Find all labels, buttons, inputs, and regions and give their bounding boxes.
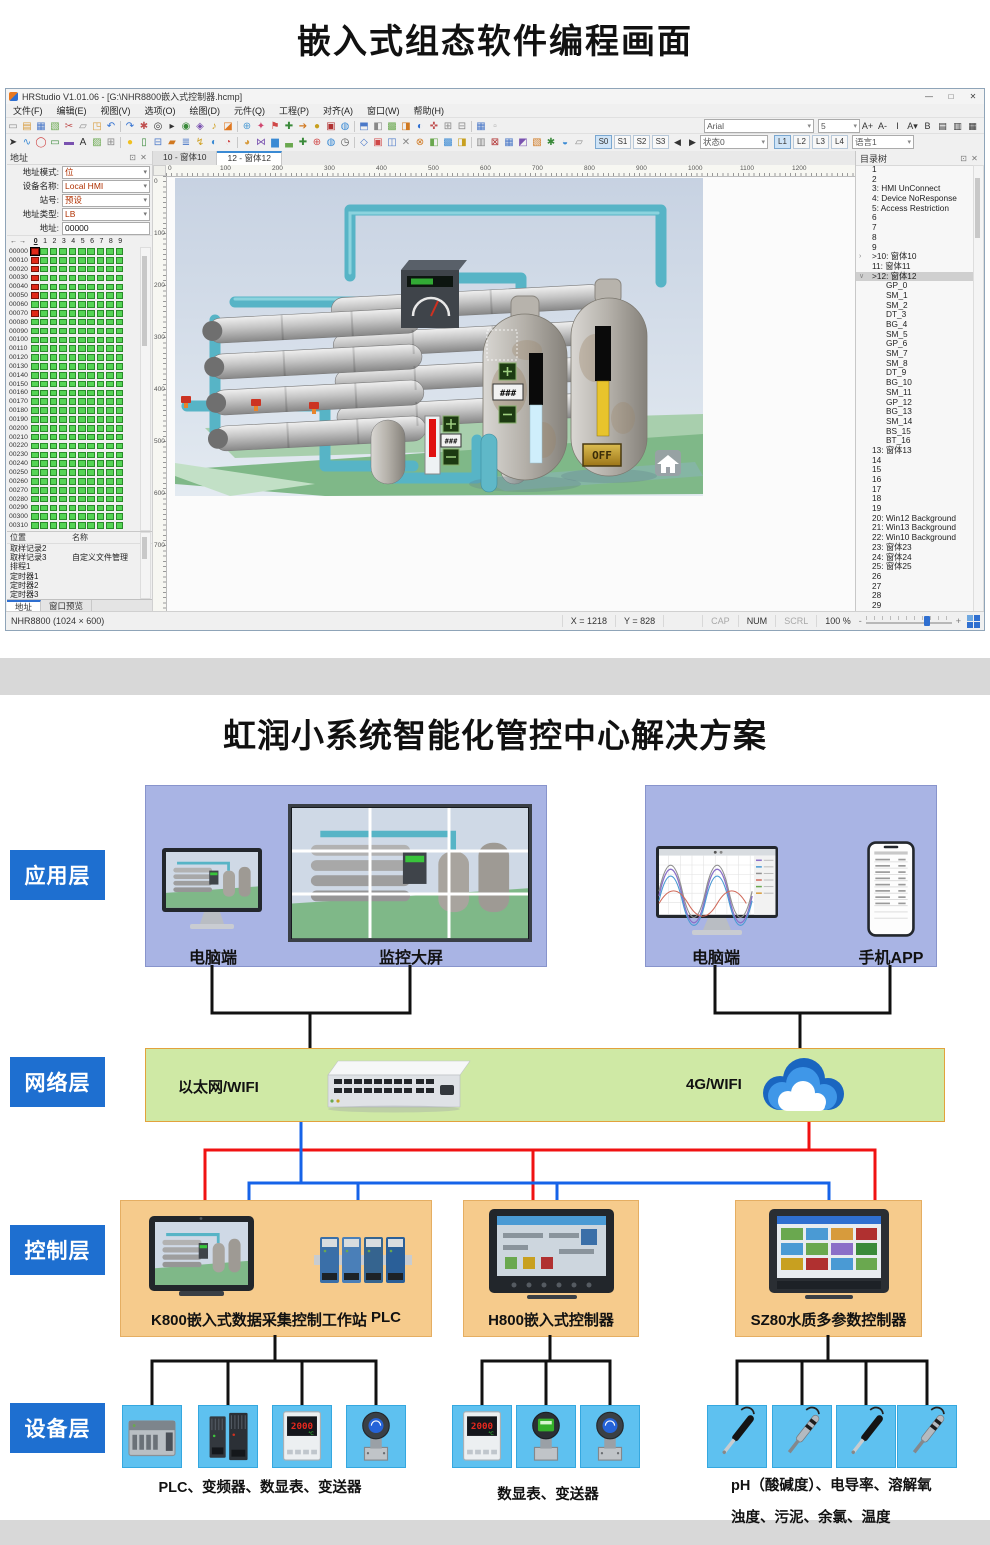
- bit-cell[interactable]: [69, 390, 77, 397]
- bit-cell[interactable]: [97, 513, 105, 520]
- bit-cell[interactable]: [69, 248, 77, 255]
- tree-scrollbar[interactable]: [973, 165, 984, 612]
- language-button[interactable]: L1: [774, 135, 791, 149]
- bit-cell[interactable]: [78, 381, 86, 388]
- tree-item[interactable]: SM_14: [856, 417, 975, 427]
- bit-cell[interactable]: [116, 284, 124, 291]
- toolbar-icon[interactable]: ♪: [207, 120, 221, 133]
- bit-cell[interactable]: [78, 496, 86, 503]
- bit-cell[interactable]: [97, 425, 105, 432]
- bit-cell[interactable]: [59, 522, 67, 529]
- zoom-out-button[interactable]: -: [859, 616, 862, 626]
- table-scrollbar[interactable]: [140, 532, 151, 599]
- bit-cell[interactable]: [87, 292, 95, 299]
- bit-cell[interactable]: [106, 416, 114, 423]
- toolbar-icon[interactable]: ▣: [324, 120, 338, 133]
- zoom-in-button[interactable]: +: [956, 616, 961, 626]
- font-style-button[interactable]: B: [920, 121, 935, 131]
- bit-cell[interactable]: [97, 390, 105, 397]
- bit-cell[interactable]: [97, 310, 105, 317]
- bit-cell[interactable]: [87, 310, 95, 317]
- bit-cell[interactable]: [59, 337, 67, 344]
- toolbar-icon[interactable]: ◨: [455, 136, 469, 149]
- bit-cell[interactable]: [87, 284, 95, 291]
- value-display[interactable]: ###: [493, 384, 523, 400]
- bit-cell[interactable]: [78, 292, 86, 299]
- bit-cell[interactable]: [50, 381, 58, 388]
- toolbar-icon[interactable]: ◒: [558, 136, 572, 149]
- bit-cell[interactable]: [69, 266, 77, 273]
- toolbar-icon[interactable]: ▩: [385, 120, 399, 133]
- bit-cell[interactable]: [106, 478, 114, 485]
- bit-cell[interactable]: [97, 266, 105, 273]
- menu-item[interactable]: 元件(Q): [227, 104, 272, 117]
- bit-cell[interactable]: [87, 513, 95, 520]
- bit-cell[interactable]: [50, 407, 58, 414]
- bit-cell[interactable]: [69, 478, 77, 485]
- bit-cell[interactable]: [50, 416, 58, 423]
- bit-cell[interactable]: [40, 425, 48, 432]
- bit-cell[interactable]: [106, 452, 114, 459]
- bit-cell[interactable]: [87, 416, 95, 423]
- bit-cell[interactable]: [87, 487, 95, 494]
- bit-cell[interactable]: [31, 310, 39, 317]
- bit-cell[interactable]: [97, 469, 105, 476]
- toolbar-icon[interactable]: ◔: [221, 136, 235, 149]
- bit-cell[interactable]: [69, 275, 77, 282]
- bit-cell[interactable]: [40, 496, 48, 503]
- bit-cell[interactable]: [97, 496, 105, 503]
- bit-cell[interactable]: [59, 328, 67, 335]
- bit-cell[interactable]: [31, 363, 39, 370]
- bit-cell[interactable]: [50, 487, 58, 494]
- toolbar-icon[interactable]: ✜: [427, 120, 441, 133]
- bit-cell[interactable]: [40, 301, 48, 308]
- toolbar-icon[interactable]: ⊕: [240, 120, 254, 133]
- bit-cell[interactable]: [97, 452, 105, 459]
- bit-cell[interactable]: [78, 434, 86, 441]
- bit-cell[interactable]: [69, 416, 77, 423]
- expander-icon[interactable]: ›: [859, 252, 861, 262]
- toolbar-icon[interactable]: ⊞: [104, 136, 118, 149]
- bit-cell[interactable]: [87, 505, 95, 512]
- toolbar-icon[interactable]: ◳: [90, 120, 104, 133]
- bit-cell[interactable]: [69, 310, 77, 317]
- tree-item[interactable]: BG_10: [856, 378, 975, 388]
- bit-cell[interactable]: [116, 292, 124, 299]
- bit-cell[interactable]: [59, 443, 67, 450]
- toolbar-icon[interactable]: ↷: [123, 120, 137, 133]
- bit-cell[interactable]: [50, 301, 58, 308]
- bit-cell[interactable]: [116, 398, 124, 405]
- tree-item[interactable]: DT_9: [856, 368, 975, 378]
- toolbar-icon[interactable]: ✱: [544, 136, 558, 149]
- bit-cell[interactable]: [69, 522, 77, 529]
- bit-cell[interactable]: [78, 266, 86, 273]
- field-select[interactable]: Local HMI▾: [62, 180, 150, 193]
- bit-cell[interactable]: [116, 443, 124, 450]
- bit-cell[interactable]: [97, 478, 105, 485]
- toolbar-icon[interactable]: ◪: [221, 120, 235, 133]
- bit-cell[interactable]: [59, 381, 67, 388]
- bit-cell[interactable]: [78, 301, 86, 308]
- bit-cell[interactable]: [87, 390, 95, 397]
- bit-cell[interactable]: [40, 363, 48, 370]
- font-style-button[interactable]: I: [890, 121, 905, 131]
- toolbar-icon[interactable]: ⚑: [268, 120, 282, 133]
- bit-cell[interactable]: [78, 487, 86, 494]
- bit-cell[interactable]: [116, 275, 124, 282]
- toolbar-icon[interactable]: ◩: [516, 136, 530, 149]
- bit-cell[interactable]: [97, 292, 105, 299]
- tree-item[interactable]: SM_1: [856, 291, 975, 301]
- bit-cell[interactable]: [59, 425, 67, 432]
- bit-cell[interactable]: [40, 284, 48, 291]
- bit-cell[interactable]: [78, 398, 86, 405]
- bit-cell[interactable]: [40, 469, 48, 476]
- toolbar-icon[interactable]: ✦: [254, 120, 268, 133]
- bit-cell[interactable]: [40, 434, 48, 441]
- bit-cell[interactable]: [31, 257, 39, 264]
- bit-cell[interactable]: [59, 452, 67, 459]
- tree-item[interactable]: 29: [856, 601, 975, 611]
- tree-item[interactable]: SM_5: [856, 330, 975, 340]
- toolbar-icon[interactable]: ✱: [137, 120, 151, 133]
- toolbar-icon[interactable]: ∿: [20, 136, 34, 149]
- bit-cell[interactable]: [50, 505, 58, 512]
- bit-cell[interactable]: [116, 248, 124, 255]
- bit-cell[interactable]: [59, 469, 67, 476]
- bit-cell[interactable]: [78, 469, 86, 476]
- state-button[interactable]: S0: [595, 135, 612, 149]
- bit-cell[interactable]: [78, 257, 86, 264]
- bit-cell[interactable]: [106, 425, 114, 432]
- bit-cell[interactable]: [40, 310, 48, 317]
- bit-cell[interactable]: [50, 390, 58, 397]
- toolbar-icon[interactable]: ⬒: [357, 120, 371, 133]
- toolbar-icon[interactable]: ➔: [296, 120, 310, 133]
- bit-cell[interactable]: [97, 407, 105, 414]
- toolbar-icon[interactable]: ▱: [76, 120, 90, 133]
- bit-cell[interactable]: [78, 248, 86, 255]
- bit-cell[interactable]: [40, 319, 48, 326]
- bit-cell[interactable]: [106, 460, 114, 467]
- toolbar-icon[interactable]: ◉: [179, 120, 193, 133]
- bit-cell[interactable]: [69, 372, 77, 379]
- bit-cell[interactable]: [31, 522, 39, 529]
- bit-cell[interactable]: [106, 292, 114, 299]
- bit-cell[interactable]: [116, 496, 124, 503]
- toolbar-icon[interactable]: ⊞: [441, 120, 455, 133]
- bit-cell[interactable]: [116, 381, 124, 388]
- bit-cell[interactable]: [50, 496, 58, 503]
- state-button[interactable]: S1: [614, 135, 631, 149]
- toolbar-icon[interactable]: ➤: [6, 136, 20, 149]
- bit-cell[interactable]: [50, 248, 58, 255]
- bit-cell[interactable]: [106, 513, 114, 520]
- bit-cell[interactable]: [116, 487, 124, 494]
- toolbar-icon[interactable]: ▧: [48, 120, 62, 133]
- bit-cell[interactable]: [69, 345, 77, 352]
- toolbar-icon[interactable]: ◫: [385, 136, 399, 149]
- maximize-button[interactable]: □: [940, 92, 962, 101]
- bit-cell[interactable]: [97, 522, 105, 529]
- toolbar-icon[interactable]: ▭: [6, 120, 20, 133]
- bit-cell[interactable]: [106, 381, 114, 388]
- bit-cell[interactable]: [40, 328, 48, 335]
- toolbar-icon[interactable]: ▥: [474, 136, 488, 149]
- bit-cell[interactable]: [50, 266, 58, 273]
- toolbar-icon[interactable]: ◷: [338, 136, 352, 149]
- bit-cell[interactable]: [59, 434, 67, 441]
- bit-cell[interactable]: [106, 434, 114, 441]
- bit-cell[interactable]: [97, 363, 105, 370]
- bit-cell[interactable]: [97, 416, 105, 423]
- bit-cell[interactable]: [69, 292, 77, 299]
- bit-cell[interactable]: [40, 275, 48, 282]
- bit-cell[interactable]: [78, 337, 86, 344]
- toolbar-icon[interactable]: ▧: [530, 136, 544, 149]
- font-size-select[interactable]: 5▾: [818, 119, 860, 133]
- bit-cell[interactable]: [78, 363, 86, 370]
- bit-cell[interactable]: [87, 469, 95, 476]
- font-style-button[interactable]: ▤: [935, 121, 950, 132]
- bit-cell[interactable]: [97, 398, 105, 405]
- toolbar-icon[interactable]: ⊕: [310, 136, 324, 149]
- tree-item[interactable]: BG_13: [856, 407, 975, 417]
- bit-cell[interactable]: [31, 275, 39, 282]
- bit-cell[interactable]: [31, 443, 39, 450]
- bit-cell[interactable]: [69, 434, 77, 441]
- menu-item[interactable]: 编辑(E): [50, 104, 94, 117]
- bit-cell[interactable]: [106, 301, 114, 308]
- toolbar-icon[interactable]: ▣: [371, 136, 385, 149]
- bit-cell[interactable]: [116, 522, 124, 529]
- next-state-icon[interactable]: ▶: [685, 137, 700, 148]
- bit-cell[interactable]: [59, 345, 67, 352]
- toolbar-icon[interactable]: ◯: [34, 136, 48, 149]
- bit-cell[interactable]: [69, 257, 77, 264]
- bit-cell[interactable]: [50, 513, 58, 520]
- tree-item[interactable]: BG_4: [856, 320, 975, 330]
- bit-cell[interactable]: [50, 398, 58, 405]
- bit-cell[interactable]: [40, 345, 48, 352]
- bit-cell[interactable]: [87, 478, 95, 485]
- bit-cell[interactable]: [78, 345, 86, 352]
- bit-cell[interactable]: [50, 425, 58, 432]
- bit-cell[interactable]: [50, 292, 58, 299]
- toolbar-icon[interactable]: ▤: [20, 120, 34, 133]
- toolbar-icon[interactable]: ≣: [179, 136, 193, 149]
- grid-nav-icon[interactable]: ←: [9, 238, 18, 245]
- bit-cell[interactable]: [97, 381, 105, 388]
- bit-cell[interactable]: [50, 452, 58, 459]
- prev-state-icon[interactable]: ◀: [670, 137, 685, 148]
- bit-cell[interactable]: [116, 425, 124, 432]
- bit-cell[interactable]: [50, 337, 58, 344]
- bit-cell[interactable]: [59, 363, 67, 370]
- bit-cell[interactable]: [50, 345, 58, 352]
- bit-cell[interactable]: [31, 284, 39, 291]
- bit-cell[interactable]: [31, 319, 39, 326]
- bit-cell[interactable]: [97, 354, 105, 361]
- bit-cell[interactable]: [69, 452, 77, 459]
- bit-cell[interactable]: [106, 354, 114, 361]
- field-select[interactable]: 预设▾: [62, 194, 150, 207]
- bit-cell[interactable]: [31, 345, 39, 352]
- bit-cell[interactable]: [59, 292, 67, 299]
- bit-cell[interactable]: [40, 416, 48, 423]
- bit-cell[interactable]: [97, 372, 105, 379]
- bit-cell[interactable]: [116, 434, 124, 441]
- bit-cell[interactable]: [31, 390, 39, 397]
- address-input[interactable]: 00000: [62, 222, 150, 235]
- bit-cell[interactable]: [40, 478, 48, 485]
- bit-cell[interactable]: [87, 275, 95, 282]
- bit-cell[interactable]: [40, 354, 48, 361]
- bit-cell[interactable]: [116, 372, 124, 379]
- bit-cell[interactable]: [78, 425, 86, 432]
- bit-cell[interactable]: [97, 443, 105, 450]
- bit-cell[interactable]: [97, 337, 105, 344]
- language-select[interactable]: 语言1▾: [852, 135, 914, 149]
- close-icon[interactable]: ✕: [138, 153, 149, 162]
- bit-cell[interactable]: [106, 284, 114, 291]
- toolbar-icon[interactable]: ✚: [282, 120, 296, 133]
- bit-cell[interactable]: [116, 390, 124, 397]
- font-style-button[interactable]: A▾: [905, 121, 920, 132]
- toolbar-icon[interactable]: ▫: [488, 120, 502, 133]
- toolbar-icon[interactable]: ▩: [441, 136, 455, 149]
- font-style-button[interactable]: ▦: [965, 121, 980, 132]
- toolbar-icon[interactable]: ◈: [193, 120, 207, 133]
- tree-item[interactable]: DT_3: [856, 310, 975, 320]
- bit-cell[interactable]: [116, 345, 124, 352]
- bit-cell[interactable]: [97, 257, 105, 264]
- bit-cell[interactable]: [59, 372, 67, 379]
- bit-cell[interactable]: [78, 416, 86, 423]
- bit-cell[interactable]: [50, 328, 58, 335]
- bit-cell[interactable]: [87, 452, 95, 459]
- toolbar-icon[interactable]: ▰: [165, 136, 179, 149]
- bit-cell[interactable]: [87, 354, 95, 361]
- toolbar-icon[interactable]: ↯: [193, 136, 207, 149]
- bit-cell[interactable]: [69, 284, 77, 291]
- toolbar-icon[interactable]: ▱: [572, 136, 586, 149]
- bit-cell[interactable]: [87, 522, 95, 529]
- tree-item[interactable]: GP_12: [856, 398, 975, 408]
- bit-cell[interactable]: [40, 513, 48, 520]
- pin-icon[interactable]: ⊡: [127, 153, 138, 162]
- bit-cell[interactable]: [40, 522, 48, 529]
- bit-cell[interactable]: [97, 434, 105, 441]
- bit-cell[interactable]: [59, 310, 67, 317]
- bit-cell[interactable]: [106, 257, 114, 264]
- bit-cell[interactable]: [59, 390, 67, 397]
- bit-cell[interactable]: [87, 363, 95, 370]
- bit-cell[interactable]: [59, 354, 67, 361]
- bit-cell[interactable]: [40, 398, 48, 405]
- bit-cell[interactable]: [31, 452, 39, 459]
- bit-cell[interactable]: [40, 337, 48, 344]
- bit-cell[interactable]: [116, 301, 124, 308]
- bit-cell[interactable]: [69, 381, 77, 388]
- toolbar-icon[interactable]: ▬: [62, 136, 76, 149]
- toolbar-icon[interactable]: ▦: [34, 120, 48, 133]
- font-style-button[interactable]: A-: [875, 121, 890, 131]
- toolbar-icon[interactable]: ✂: [62, 120, 76, 133]
- bit-cell[interactable]: [97, 301, 105, 308]
- bit-cell[interactable]: [50, 257, 58, 264]
- bit-cell[interactable]: [31, 513, 39, 520]
- hmi-scene-canvas[interactable]: ### OFF: [175, 178, 703, 496]
- bit-cell[interactable]: [87, 372, 95, 379]
- bit-cell[interactable]: [69, 513, 77, 520]
- toolbar-icon[interactable]: ▦: [502, 136, 516, 149]
- bit-cell[interactable]: [116, 363, 124, 370]
- bit-cell[interactable]: [40, 487, 48, 494]
- bit-cell[interactable]: [97, 275, 105, 282]
- toolbar-icon[interactable]: ▨: [90, 136, 104, 149]
- bit-cell[interactable]: [97, 505, 105, 512]
- tree-item[interactable]: GP_0: [856, 281, 975, 291]
- field-select[interactable]: 位▾: [62, 166, 150, 179]
- bit-cell[interactable]: [97, 284, 105, 291]
- bit-cell[interactable]: [106, 363, 114, 370]
- bit-cell[interactable]: [116, 505, 124, 512]
- bit-cell[interactable]: [116, 310, 124, 317]
- grid-scrollbar[interactable]: [140, 247, 151, 531]
- bit-cell[interactable]: [50, 478, 58, 485]
- home-icon[interactable]: [655, 450, 681, 476]
- bit-cell[interactable]: [31, 460, 39, 467]
- bit-cell[interactable]: [31, 301, 39, 308]
- bit-cell[interactable]: [69, 319, 77, 326]
- state-select[interactable]: 状态0▾: [700, 135, 768, 149]
- toolbar-icon[interactable]: ●: [123, 136, 137, 149]
- increase-button[interactable]: [499, 363, 516, 380]
- bit-cell[interactable]: [78, 319, 86, 326]
- table-row[interactable]: 定时器3: [7, 590, 152, 599]
- bit-cell[interactable]: [106, 522, 114, 529]
- toolbar-icon[interactable]: ▆: [268, 136, 282, 149]
- bit-cell[interactable]: [97, 487, 105, 494]
- bit-cell[interactable]: [116, 478, 124, 485]
- bit-cell[interactable]: [40, 390, 48, 397]
- toolbar-icon[interactable]: ✚: [296, 136, 310, 149]
- toolbar-icon[interactable]: A: [76, 136, 90, 149]
- bit-cell[interactable]: [87, 434, 95, 441]
- bit-cell[interactable]: [31, 416, 39, 423]
- bit-cell[interactable]: [31, 248, 39, 255]
- bit-cell[interactable]: [87, 266, 95, 273]
- bit-cell[interactable]: [69, 337, 77, 344]
- bit-cell[interactable]: [50, 372, 58, 379]
- toolbar-icon[interactable]: ◕: [240, 136, 254, 149]
- bit-cell[interactable]: [31, 381, 39, 388]
- bit-cell[interactable]: [59, 505, 67, 512]
- menu-item[interactable]: 窗口(W): [360, 104, 407, 117]
- bit-cell[interactable]: [40, 443, 48, 450]
- toolbar-icon[interactable]: ✕: [399, 136, 413, 149]
- bit-cell[interactable]: [78, 478, 86, 485]
- bit-cell[interactable]: [50, 354, 58, 361]
- bit-cell[interactable]: [106, 469, 114, 476]
- bit-cell[interactable]: [116, 257, 124, 264]
- bit-cell[interactable]: [31, 478, 39, 485]
- bit-cell[interactable]: [116, 337, 124, 344]
- bit-cell[interactable]: [87, 460, 95, 467]
